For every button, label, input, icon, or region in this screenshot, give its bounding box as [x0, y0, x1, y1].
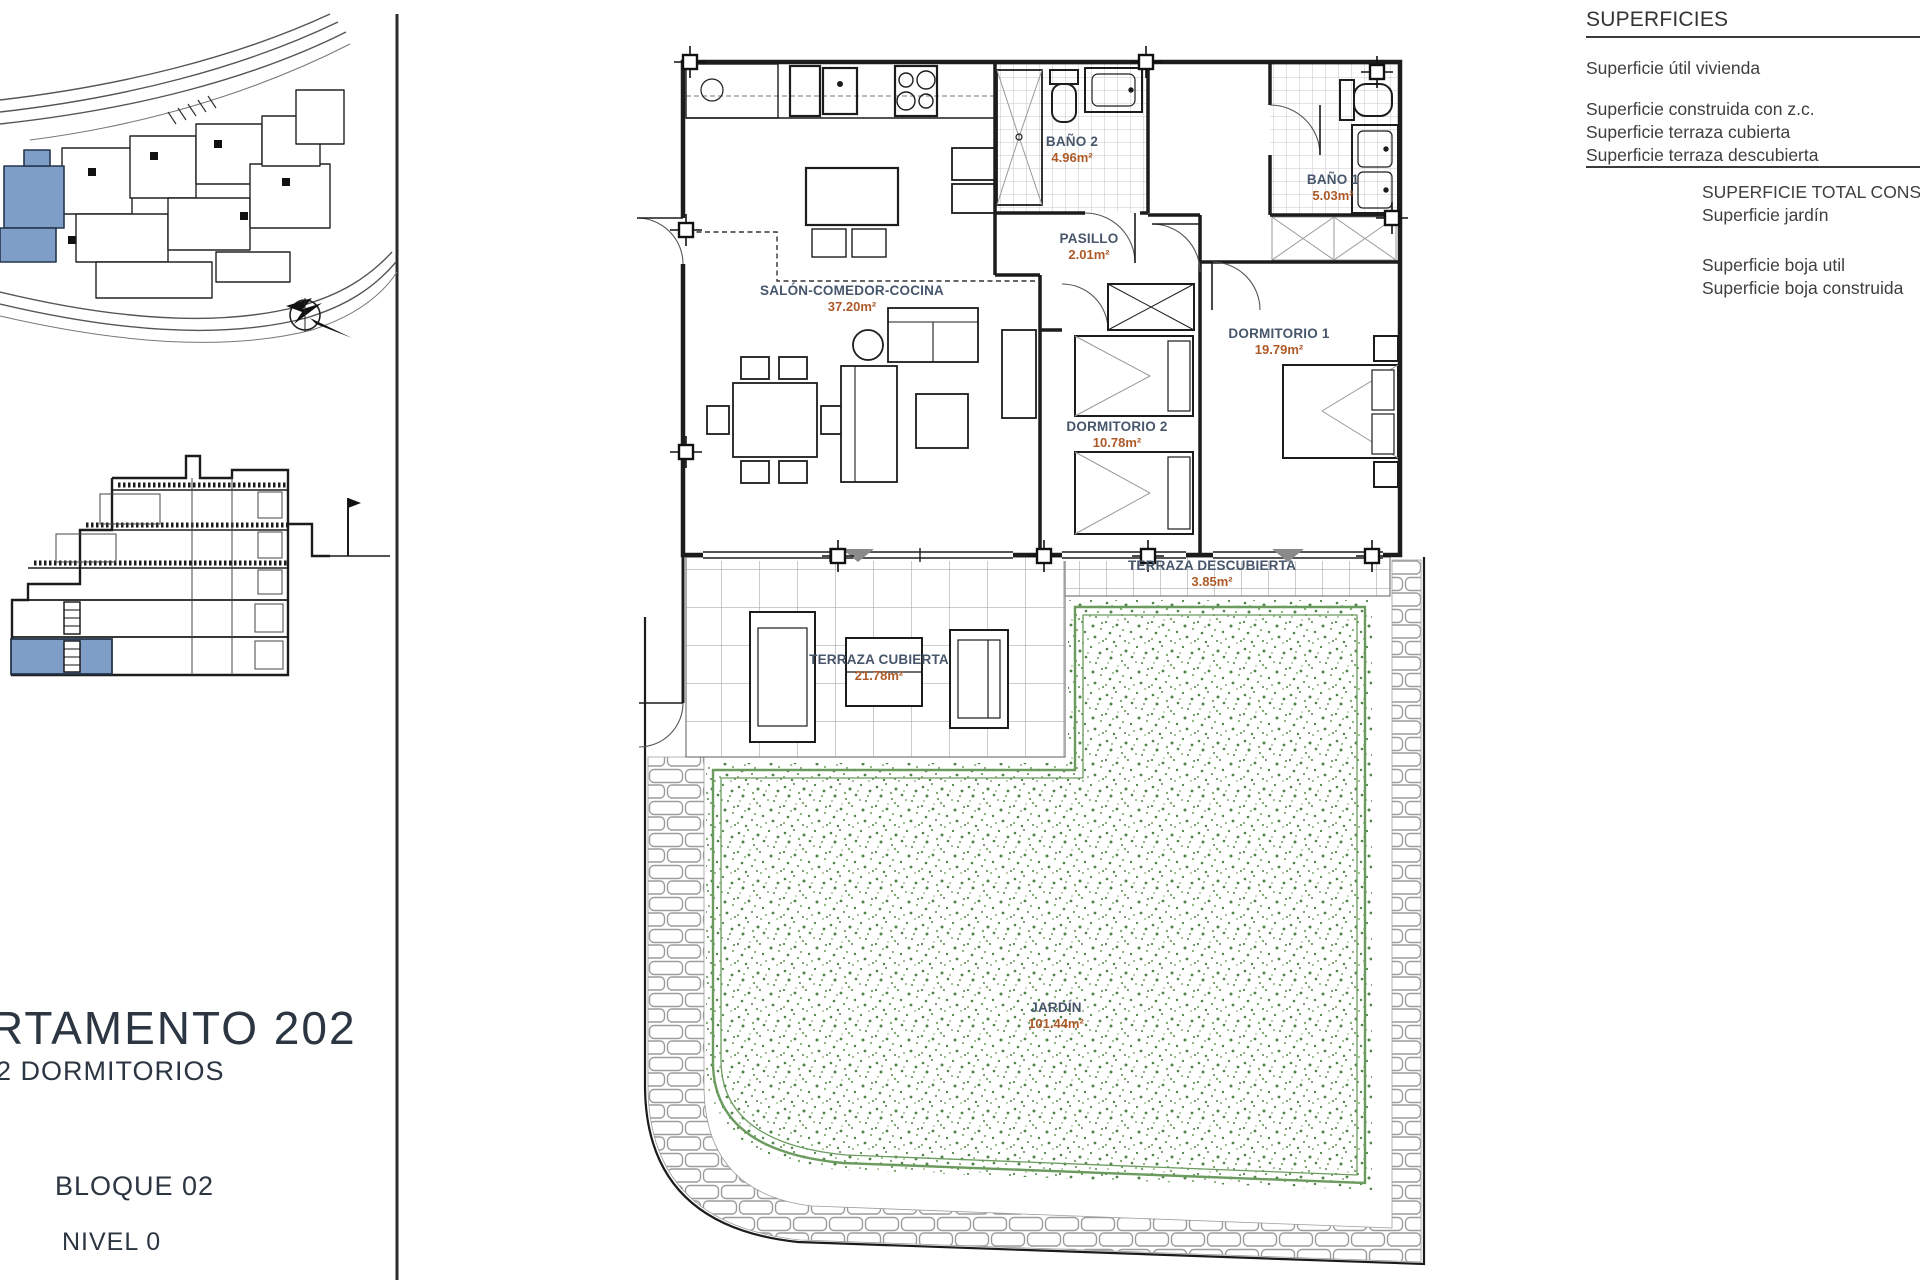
label-pasillo: PASILLO 2.01m² [1060, 231, 1119, 263]
superficies-title-rule [1586, 36, 1920, 38]
apartment-type: 2 DORMITORIOS [0, 1056, 225, 1087]
dorm1-area: 19.79m² [1228, 342, 1329, 358]
bano2-area: 4.96m² [1046, 150, 1098, 166]
living-furniture [707, 308, 1036, 483]
superficies-row-total: SUPERFICIE TOTAL CONSTR [1702, 182, 1920, 203]
terraza-desc-area: 3.85m² [1128, 574, 1296, 590]
label-bano1: BAÑO 1 5.03m² [1307, 172, 1359, 204]
site-plan [0, 14, 397, 342]
label-dorm2: DORMITORIO 2 10.78m² [1066, 419, 1167, 451]
highlighted-section-level [11, 639, 112, 674]
superficies-row-terraza-cubierta: Superficie terraza cubierta [1586, 122, 1790, 143]
pasillo-name: PASILLO [1060, 231, 1119, 247]
terraza-cub-name: TERRAZA CUBIERTA [809, 652, 949, 668]
pasillo-area: 2.01m² [1060, 247, 1119, 263]
floor-plan-sheet: { "superficies": { "title": "SUPERFICIES… [0, 0, 1920, 1280]
apartment-title: RTAMENTO 202 [0, 1001, 357, 1055]
dorm2-name: DORMITORIO 2 [1066, 419, 1167, 435]
highlighted-building [0, 150, 64, 262]
superficies-divider-rule [1586, 166, 1920, 168]
dorm1-name: DORMITORIO 1 [1228, 326, 1329, 342]
superficies-panel: SUPERFICIES Superficie útil vivienda Sup… [1586, 0, 1920, 320]
superficies-row-boja-util: Superficie boja util [1702, 255, 1845, 276]
kitchen [686, 64, 995, 257]
bedroom2-furniture [1075, 284, 1194, 534]
superficies-row-boja-construida: Superficie boja construida [1702, 278, 1903, 299]
superficies-row-util: Superficie útil vivienda [1586, 58, 1760, 79]
level-label: NIVEL 0 [62, 1228, 161, 1257]
superficies-row-jardin: Superficie jardín [1702, 205, 1828, 226]
jardin-area: 101.44m² [1028, 1016, 1084, 1032]
label-salon: SALÓN-COMEDOR-COCINA 37.20m² [760, 283, 944, 315]
label-terraza-descubierta: TERRAZA DESCUBIERTA 3.85m² [1128, 558, 1296, 590]
label-terraza-cubierta: TERRAZA CUBIERTA 21.78m² [809, 652, 949, 684]
label-jardin: JARDÍN 101.44m² [1028, 1000, 1084, 1032]
block-label: BLOQUE 02 [55, 1171, 214, 1202]
dorm2-area: 10.78m² [1066, 435, 1167, 451]
section-drawing [11, 456, 390, 675]
terraza-cub-area: 21.78m² [809, 668, 949, 684]
bano1-area: 5.03m² [1307, 188, 1359, 204]
bedroom1-furniture [1283, 336, 1398, 487]
terraza-desc-name: TERRAZA DESCUBIERTA [1128, 558, 1296, 574]
superficies-row-construida: Superficie construida con z.c. [1586, 99, 1815, 120]
apartment-plan [637, 46, 1408, 572]
bano1-name: BAÑO 1 [1307, 172, 1359, 188]
jardin-name: JARDÍN [1028, 1000, 1084, 1016]
superficies-title: SUPERFICIES [1586, 8, 1728, 32]
salon-area: 37.20m² [760, 299, 944, 315]
salon-name: SALÓN-COMEDOR-COCINA [760, 283, 944, 299]
label-bano2: BAÑO 2 4.96m² [1046, 134, 1098, 166]
label-dorm1: DORMITORIO 1 19.79m² [1228, 326, 1329, 358]
superficies-row-terraza-descubierta: Superficie terraza descubierta [1586, 145, 1818, 166]
bano2-name: BAÑO 2 [1046, 134, 1098, 150]
